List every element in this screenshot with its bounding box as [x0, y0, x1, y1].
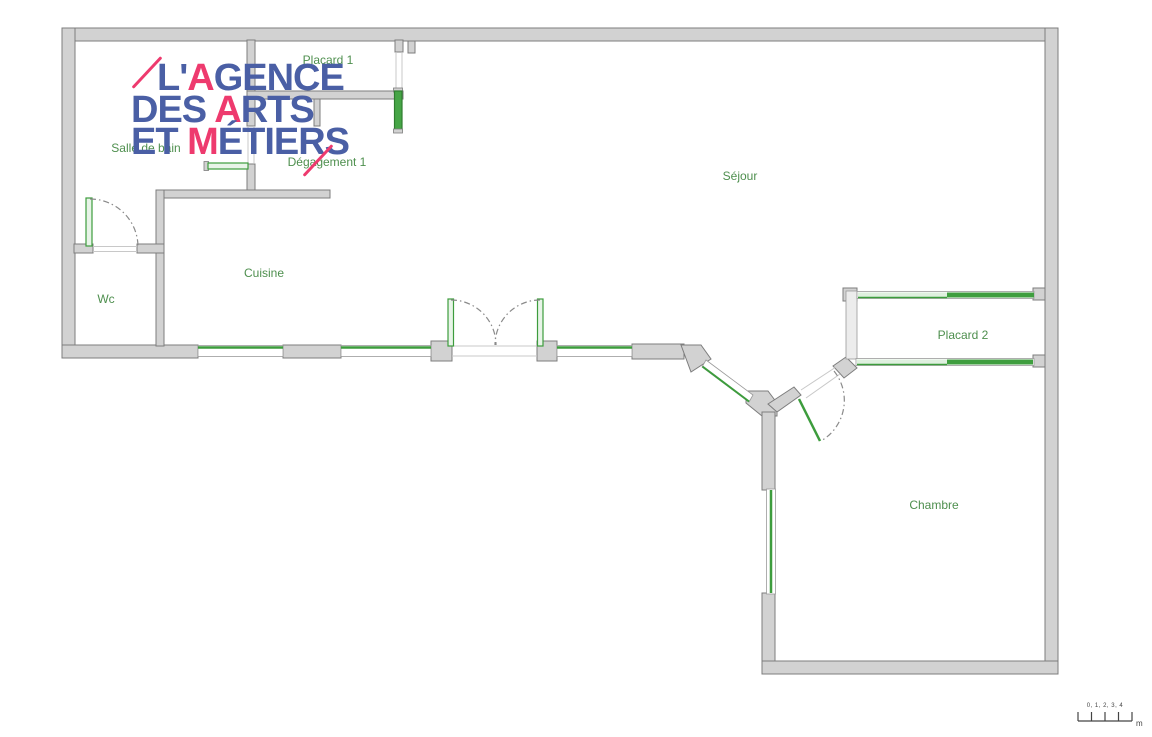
wall-placard2-topright [1033, 288, 1045, 300]
wall-placard1-right-stub [395, 40, 403, 52]
chambre-door-arc [821, 371, 844, 441]
room-label-sejour: Séjour [723, 169, 758, 183]
wc-door [86, 198, 138, 247]
wall-bottom-seg1 [62, 345, 198, 358]
placard2-bottom-panel-dark [947, 360, 1033, 365]
wall-placard2-bottomright [1033, 355, 1045, 367]
scale-bar-unit: m [1136, 719, 1143, 728]
wall-bottom-seg2 [283, 345, 341, 358]
wall-wc-top-right [137, 244, 164, 253]
wall-wc-right [156, 190, 164, 346]
wall-cuisine-top [156, 190, 330, 198]
placard2-top-panel-dark [947, 293, 1034, 298]
wall-top [62, 28, 1058, 41]
room-label-wc: Wc [97, 292, 114, 306]
windows [198, 346, 776, 595]
french-door-leaf-left [448, 299, 454, 346]
chambre-door-leaf [799, 399, 820, 441]
wall-left [62, 28, 75, 358]
placard1-door-cap-bottom [394, 129, 403, 133]
french-door-leaf-right [538, 299, 544, 346]
wall-chambre-left-upper [762, 412, 775, 490]
window-1 [198, 346, 283, 357]
sdb-door-leaf [208, 163, 248, 169]
wall-right [1045, 28, 1058, 674]
french-door [448, 299, 543, 346]
logo-line-3: ET MÉTIERS [131, 126, 349, 158]
wc-door-leaf [86, 198, 92, 246]
french-door-arc-left [451, 300, 496, 345]
room-label-cuisine: Cuisine [244, 266, 284, 280]
window-2 [341, 346, 431, 357]
wc-door-arc [90, 199, 138, 247]
chambre-door [799, 371, 844, 441]
scale-bar-labels: 0, 1, 2, 3, 4 [1076, 703, 1134, 709]
floor-plan-page: Placard 1 Salle de bain Dégagement 1 Séj… [0, 0, 1152, 737]
agency-logo: L'AGENCE DES ARTS ET MÉTIERS [131, 62, 349, 158]
wall-chambre-left-lower [762, 593, 775, 661]
placard1-door [394, 88, 403, 133]
wall-placard2-left [846, 291, 857, 359]
room-label-placard2: Placard 2 [938, 328, 989, 342]
window-angled [702, 360, 753, 402]
wall-chambre-bottom [762, 661, 1058, 674]
wall-top-stub [408, 41, 415, 53]
french-door-arc-right [495, 300, 540, 345]
window-chambre [767, 489, 776, 594]
window-3 [557, 346, 632, 357]
wall-bottom-seg3 [632, 344, 684, 359]
placard1-door-leaf [395, 91, 403, 131]
room-label-chambre: Chambre [909, 498, 958, 512]
scale-bar [1078, 712, 1132, 721]
